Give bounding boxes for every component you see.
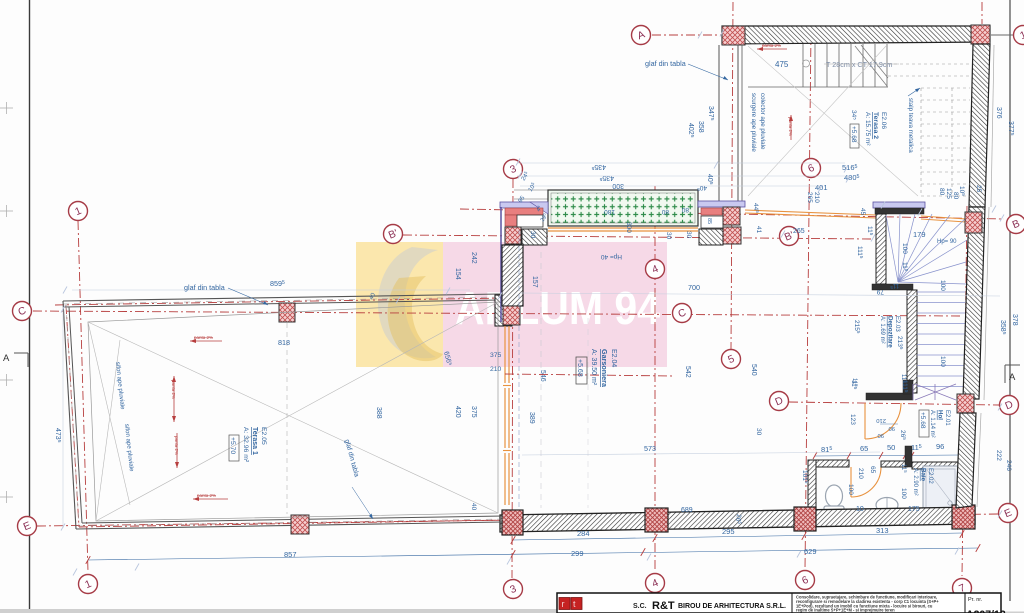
svg-text:242: 242 (470, 252, 477, 264)
svg-text:30: 30 (529, 231, 536, 239)
svg-text:300: 300 (612, 182, 624, 189)
svg-text:100: 100 (900, 488, 907, 499)
svg-text:375: 375 (490, 352, 502, 359)
svg-text:A: 15.75 m²: A: 15.75 m² (864, 112, 871, 146)
svg-text:857: 857 (284, 550, 297, 559)
svg-text:A: 1.69 m²: A: 1.69 m² (879, 316, 885, 344)
svg-text:A: A (3, 353, 10, 364)
svg-text:Terasa 2: Terasa 2 (872, 112, 879, 139)
svg-text:180: 180 (604, 208, 615, 215)
svg-text:scurgere ape pluviale: scurgere ape pluviale (750, 93, 757, 152)
svg-text:25: 25 (975, 185, 982, 193)
svg-text:573: 573 (644, 444, 656, 453)
svg-text:85: 85 (706, 218, 712, 224)
svg-text:regim de inaltime S+P+1E+M - s: regim de inaltime S+P+1E+M - si imprejmu… (796, 608, 895, 613)
svg-text:210: 210 (490, 366, 502, 373)
svg-text:700: 700 (688, 283, 700, 292)
svg-text:210: 210 (813, 192, 820, 203)
svg-text:S.C.: S.C. (633, 603, 647, 610)
svg-text:stalp teava metalica: stalp teava metalica (907, 98, 914, 153)
svg-text:A: 32.96 m²: A: 32.96 m² (242, 427, 249, 463)
svg-text:246: 246 (1005, 460, 1012, 471)
svg-text:E2.04: E2.04 (610, 349, 617, 367)
svg-text:388: 388 (375, 407, 382, 419)
svg-text:45: 45 (859, 208, 866, 216)
svg-text:378: 378 (1011, 314, 1018, 326)
svg-text:+5.68: +5.68 (576, 359, 583, 377)
svg-text:175: 175 (908, 506, 920, 513)
svg-text:T 28cm x CT 17.9cm: T 28cm x CT 17.9cm (826, 60, 892, 69)
svg-text:420: 420 (454, 406, 461, 418)
svg-text:542: 542 (684, 366, 691, 378)
svg-text:30: 30 (755, 428, 762, 436)
svg-text:540: 540 (750, 364, 757, 376)
svg-text:E2.03: E2.03 (894, 316, 900, 332)
svg-text:100: 100 (939, 356, 946, 367)
svg-text:80: 80 (938, 188, 945, 196)
svg-text:30: 30 (685, 231, 692, 239)
svg-text:79: 79 (876, 288, 884, 295)
svg-text:10: 10 (856, 506, 864, 513)
svg-text:80: 80 (661, 208, 669, 215)
svg-text:100: 100 (901, 243, 908, 254)
svg-text:80: 80 (952, 192, 959, 200)
svg-text:Hp= 40: Hp= 40 (600, 253, 622, 260)
svg-text:A: 39.50 m²: A: 39.50 m² (590, 349, 597, 386)
svg-text:90: 90 (878, 432, 884, 438)
svg-text:125: 125 (945, 188, 952, 199)
svg-text:E2.06: E2.06 (880, 112, 887, 129)
svg-text:295: 295 (722, 527, 735, 536)
svg-text:50: 50 (887, 443, 895, 452)
svg-text:265: 265 (793, 228, 805, 235)
svg-text:panta 2%: panta 2% (194, 335, 213, 340)
svg-text:157: 157 (531, 276, 538, 288)
svg-text:30: 30 (665, 232, 672, 240)
svg-text:Depozitare: Depozitare (887, 316, 894, 348)
svg-text:689: 689 (681, 507, 693, 514)
svg-text:R&T: R&T (652, 600, 675, 612)
svg-text:40: 40 (470, 503, 477, 511)
svg-text:629: 629 (804, 547, 817, 556)
svg-text:389: 389 (528, 412, 535, 424)
svg-text:glaf din tabla: glaf din tabla (184, 283, 225, 292)
svg-text:r: r (562, 599, 565, 609)
svg-text:A: 1.14 m²: A: 1.14 m² (929, 410, 935, 438)
svg-text:179: 179 (913, 230, 926, 239)
svg-text:376: 376 (995, 107, 1002, 119)
svg-text:+5.68: +5.68 (919, 412, 926, 429)
svg-text:65: 65 (860, 444, 868, 453)
svg-text:+5.70: +5.70 (229, 437, 236, 454)
svg-text:glaf din tabla: glaf din tabla (645, 59, 686, 68)
svg-text:210: 210 (876, 417, 886, 423)
svg-text:colector ape pluviale: colector ape pluviale (759, 93, 766, 150)
svg-text:A207/12: A207/12 (966, 609, 1006, 613)
svg-text:Baie: Baie (920, 468, 927, 482)
svg-text:panta 2%: panta 2% (788, 117, 793, 136)
svg-text:210: 210 (857, 468, 864, 479)
svg-text:Hol: Hol (937, 410, 944, 420)
svg-text:375: 375 (470, 406, 477, 418)
svg-text:Pr. nr.: Pr. nr. (968, 597, 983, 603)
svg-text:818: 818 (278, 338, 290, 347)
svg-text:358: 358 (697, 121, 704, 133)
svg-text:475: 475 (775, 60, 789, 69)
svg-text:34⁵: 34⁵ (850, 110, 857, 120)
svg-text:panta 2%: panta 2% (174, 436, 179, 455)
svg-text:E2.05: E2.05 (260, 427, 267, 445)
svg-text:123: 123 (849, 414, 856, 425)
svg-text:313: 313 (876, 526, 889, 535)
svg-text:80: 80 (681, 206, 689, 213)
svg-text:Terasa 1: Terasa 1 (251, 427, 258, 455)
svg-text:A: 2.90 m²: A: 2.90 m² (912, 468, 918, 496)
svg-text:96: 96 (936, 442, 944, 451)
svg-text:284: 284 (577, 529, 590, 538)
svg-text:panta 2%: panta 2% (197, 493, 216, 498)
svg-text:100: 100 (939, 280, 946, 291)
svg-text:E2.01: E2.01 (944, 410, 950, 426)
svg-text:ARLUM 94: ARLUM 94 (455, 282, 660, 334)
svg-text:65: 65 (869, 466, 876, 474)
svg-text:265: 265 (806, 192, 813, 203)
svg-text:panta 2%: panta 2% (171, 380, 176, 399)
svg-text:100: 100 (847, 484, 854, 495)
svg-text:154: 154 (454, 268, 461, 280)
svg-text:Hp= 90: Hp= 90 (937, 239, 957, 245)
svg-text:299: 299 (571, 549, 584, 558)
svg-text:90: 90 (889, 425, 895, 431)
svg-text:300: 300 (625, 222, 632, 233)
svg-text:222: 222 (995, 450, 1002, 461)
svg-text:E2.02: E2.02 (927, 468, 933, 484)
svg-text:Garsoniera: Garsoniera (600, 349, 609, 388)
svg-text:+5.68: +5.68 (850, 126, 857, 143)
svg-text:41: 41 (755, 226, 762, 234)
svg-text:A: A (1009, 372, 1016, 383)
svg-text:546: 546 (539, 370, 546, 382)
svg-text:panta 2%: panta 2% (762, 43, 781, 48)
svg-text:BIROU DE ARHITECTURA S.R.L.: BIROU DE ARHITECTURA S.R.L. (678, 603, 786, 610)
